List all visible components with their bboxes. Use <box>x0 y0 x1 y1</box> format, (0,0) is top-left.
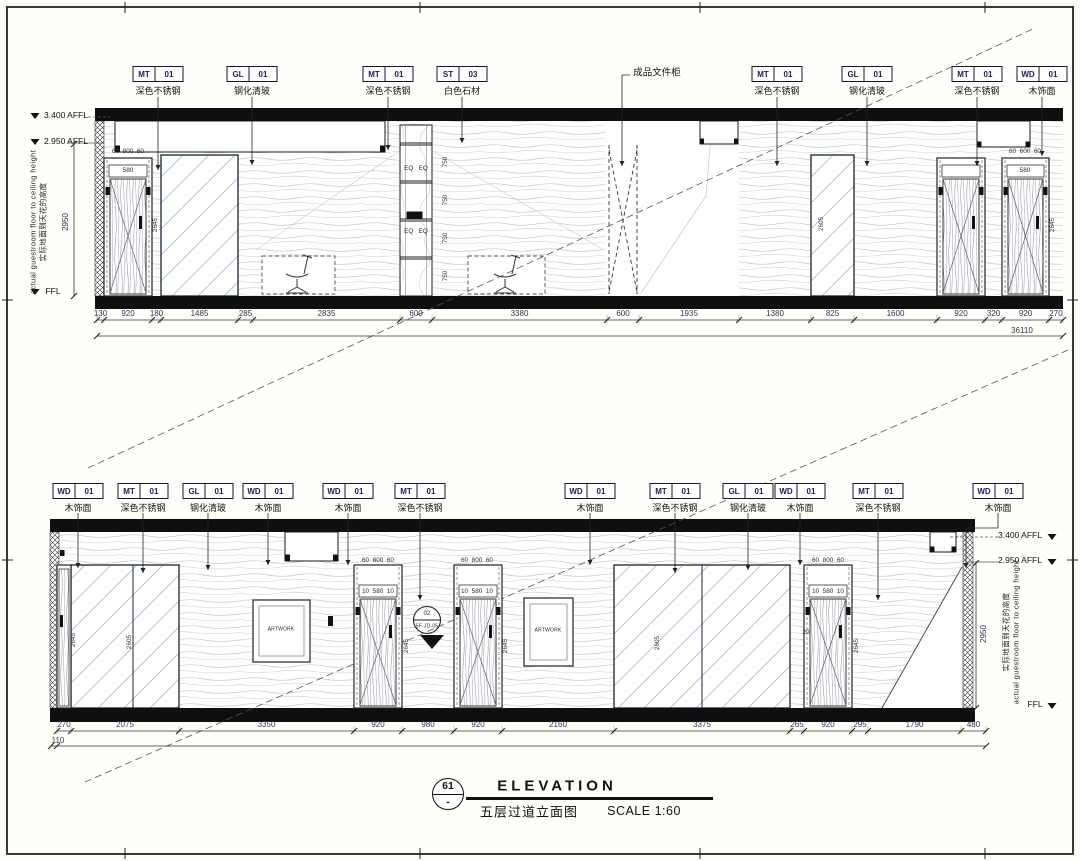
drawing-sheet: 1309201801485285283560033806001935138082… <box>0 0 1080 861</box>
material-number: 01 <box>672 484 700 498</box>
material-tag: WD01木饰面 <box>53 483 104 514</box>
detail-number-bubble: 61 - <box>432 778 464 810</box>
material-code: MT <box>396 484 417 498</box>
height-dimension: 2950 <box>62 213 70 231</box>
material-desc: 深色不锈钢 <box>365 84 410 97</box>
material-number: 01 <box>75 484 103 498</box>
reveal-dimension: 20 <box>802 630 809 636</box>
material-tag-box: MT01 <box>118 483 169 499</box>
dim-label: 920 <box>371 721 384 729</box>
level-label: FFL <box>45 287 60 296</box>
material-desc: 深色不锈钢 <box>754 84 799 97</box>
dim-label: 2835 <box>318 310 336 318</box>
dim-label: 10 580 10 <box>461 589 493 595</box>
dim-label: 1935 <box>680 310 698 318</box>
material-desc: 木饰面 <box>786 501 813 514</box>
dim-label: 2645 <box>153 218 159 232</box>
level-label: FFL <box>1027 700 1042 709</box>
dim-label: 920 <box>1019 310 1032 318</box>
dim-label: 10 580 10 <box>812 589 844 595</box>
material-code: WD <box>974 484 995 498</box>
material-code: ST <box>438 67 459 81</box>
material-desc: 深色不锈钢 <box>397 501 442 514</box>
material-number: 01 <box>249 67 277 81</box>
level-label: 2.950 AFFL <box>44 137 88 146</box>
material-tag-box: WD01 <box>775 483 826 499</box>
material-code: WD <box>566 484 587 498</box>
material-tag-box: MT01 <box>853 483 904 499</box>
dim-label: 320 <box>987 310 1000 318</box>
detail-bubble-ref: 5F-JD-05 <box>416 624 438 629</box>
material-number: 01 <box>265 484 293 498</box>
material-tag-box: GL01 <box>842 66 893 82</box>
material-number: 01 <box>1039 67 1067 81</box>
material-tag-box: MT01 <box>363 66 414 82</box>
dim-label: 2075 <box>116 721 134 729</box>
drawing-title-cn: 五层过道立面图 <box>480 802 578 821</box>
material-tag: WD01木饰面 <box>775 483 826 514</box>
dim-label: EQ EQ <box>404 229 428 235</box>
material-number: 01 <box>797 484 825 498</box>
material-desc: 深色不锈钢 <box>120 501 165 514</box>
material-tag: MT01深色不锈钢 <box>118 483 169 514</box>
material-code: MT <box>753 67 774 81</box>
material-desc: 深色不锈钢 <box>954 84 999 97</box>
material-tag: MT01深色不锈钢 <box>752 66 803 97</box>
material-number: 01 <box>155 67 183 81</box>
drawing-title: ELEVATION <box>497 778 617 795</box>
material-tag-box: MT01 <box>650 483 701 499</box>
material-number: 01 <box>140 484 168 498</box>
dim-label: 2605 <box>819 217 825 231</box>
material-tag: MT01深色不锈钢 <box>952 66 1003 97</box>
dim-label: 10 580 10 <box>362 589 394 595</box>
dim-label: 130 <box>94 310 107 318</box>
material-desc: 木饰面 <box>984 501 1011 514</box>
material-tag: MT01深色不锈钢 <box>133 66 184 97</box>
material-number: 01 <box>385 67 413 81</box>
dim-label: 920 <box>821 721 834 729</box>
material-number: 03 <box>459 67 487 81</box>
dim-label: 270 <box>1049 310 1062 318</box>
material-tag-box: MT01 <box>752 66 803 82</box>
material-tag-box: ST03 <box>437 66 488 82</box>
material-tag-box: GL01 <box>227 66 278 82</box>
material-code: MT <box>364 67 385 81</box>
artwork-label: ARTWORK <box>535 629 562 634</box>
material-desc: 白色石材 <box>444 84 480 97</box>
dim-label: 750 <box>443 195 449 206</box>
dim-label: 600 <box>616 310 629 318</box>
height-dimension: 2950 <box>980 625 988 643</box>
dim-label: 2605 <box>655 636 661 650</box>
dim-label: 2645 <box>71 633 77 647</box>
dim-label: 180 <box>150 310 163 318</box>
material-number: 01 <box>974 67 1002 81</box>
dim-label: 825 <box>826 310 839 318</box>
material-tag: MT01深色不锈钢 <box>395 483 446 514</box>
material-tag: WD01木饰面 <box>565 483 616 514</box>
dim-label: 265 <box>790 721 803 729</box>
dim-label: 3350 <box>258 721 276 729</box>
material-tag: WD01木饰面 <box>243 483 294 514</box>
dim-label: 3380 <box>511 310 529 318</box>
side-note-en: actual guestroom floor to ceiling height <box>29 150 37 294</box>
material-code: GL <box>228 67 249 81</box>
material-desc: 深色不锈钢 <box>855 501 900 514</box>
material-code: GL <box>184 484 205 498</box>
material-tag: GL01钢化清玻 <box>723 483 774 514</box>
material-tag: WD01木饰面 <box>1017 66 1068 97</box>
material-tag-box: MT01 <box>395 483 446 499</box>
dim-label: 580 <box>1020 168 1031 174</box>
material-code: MT <box>651 484 672 498</box>
material-code: MT <box>854 484 875 498</box>
dim-label: 60 600 60 <box>1009 149 1041 155</box>
material-tag: MT01深色不锈钢 <box>853 483 904 514</box>
offset-dimension: 110 <box>52 737 65 745</box>
dim-label: 2160 <box>549 721 567 729</box>
dim-label: 980 <box>421 721 434 729</box>
dim-label: 1600 <box>887 310 905 318</box>
dim-label: 1380 <box>766 310 784 318</box>
dim-label: 2645 <box>404 639 410 653</box>
material-code: GL <box>724 484 745 498</box>
dim-label: 2645 <box>1050 218 1056 232</box>
material-tag-box: WD01 <box>1017 66 1068 82</box>
material-code: MT <box>119 484 140 498</box>
material-tag-box: GL01 <box>183 483 234 499</box>
material-tag-box: WD01 <box>973 483 1024 499</box>
dim-label: 750 <box>443 157 449 168</box>
dim-label: 3375 <box>693 721 711 729</box>
dim-label: 2645 <box>854 639 860 653</box>
dim-label: 60 800 60 <box>812 558 844 564</box>
material-tag-box: WD01 <box>53 483 104 499</box>
material-code: GL <box>843 67 864 81</box>
dim-label: 1485 <box>191 310 209 318</box>
material-code: WD <box>324 484 345 498</box>
side-note-cn: 实际地面到天花的高度 <box>1002 593 1010 672</box>
material-desc: 深色不锈钢 <box>652 501 697 514</box>
material-tag: GL01钢化清玻 <box>183 483 234 514</box>
material-number: 01 <box>864 67 892 81</box>
material-tag-box: MT01 <box>133 66 184 82</box>
material-tag-box: WD01 <box>243 483 294 499</box>
dim-label: 1790 <box>906 721 924 729</box>
material-number: 01 <box>875 484 903 498</box>
material-number: 01 <box>205 484 233 498</box>
material-number: 01 <box>774 67 802 81</box>
material-tag: GL01钢化清玻 <box>227 66 278 97</box>
material-desc: 木饰面 <box>64 501 91 514</box>
annotation-layer: 1309201801485285283560033806001935138082… <box>0 0 1080 861</box>
material-number: 01 <box>745 484 773 498</box>
material-tag-box: WD01 <box>323 483 374 499</box>
material-number: 01 <box>995 484 1023 498</box>
cabinet-note: 成品文件柜 <box>633 68 681 78</box>
side-note-cn: 实际地面到天花的高度 <box>39 183 47 262</box>
material-desc: 木饰面 <box>254 501 281 514</box>
material-tag: MT01深色不锈钢 <box>650 483 701 514</box>
dim-label: 270 <box>57 721 70 729</box>
artwork-label: ARTWORK <box>268 628 295 633</box>
material-desc: 木饰面 <box>576 501 603 514</box>
material-desc: 钢化清玻 <box>190 501 226 514</box>
dim-label: 920 <box>121 310 134 318</box>
material-desc: 深色不锈钢 <box>135 84 180 97</box>
dim-label: 750 <box>443 271 449 282</box>
material-code: WD <box>54 484 75 498</box>
material-desc: 木饰面 <box>334 501 361 514</box>
dim-label: 750 <box>443 233 449 244</box>
material-number: 01 <box>417 484 445 498</box>
drawing-scale: SCALE 1:60 <box>607 804 681 818</box>
dim-label: 920 <box>471 721 484 729</box>
overall-dimension: 36110 <box>1011 327 1033 335</box>
material-number: 01 <box>345 484 373 498</box>
dim-label: 920 <box>954 310 967 318</box>
material-code: WD <box>776 484 797 498</box>
material-tag-box: WD01 <box>565 483 616 499</box>
material-desc: 钢化清玻 <box>730 501 766 514</box>
material-tag: WD01木饰面 <box>973 483 1024 514</box>
detail-bubble-number: 02 <box>423 611 430 617</box>
material-tag: MT01深色不锈钢 <box>363 66 414 97</box>
material-tag-box: MT01 <box>952 66 1003 82</box>
material-tag: WD01木饰面 <box>323 483 374 514</box>
dim-label: 295 <box>853 721 866 729</box>
material-tag: ST03白色石材 <box>437 66 488 97</box>
dim-label: 580 <box>123 168 134 174</box>
material-number: 01 <box>587 484 615 498</box>
dim-label: 2645 <box>503 639 509 653</box>
material-code: MT <box>953 67 974 81</box>
material-code: MT <box>134 67 155 81</box>
material-code: WD <box>244 484 265 498</box>
level-label: 3.400 AFFL <box>998 531 1042 540</box>
dim-label: 60 800 60 <box>112 149 144 155</box>
side-note-en: actual guestroom floor to ceiling height <box>1012 560 1020 704</box>
title-underline <box>466 797 713 800</box>
dim-label: 60 800 60 <box>461 558 493 564</box>
dim-label: 600 <box>409 310 422 318</box>
material-desc: 钢化清玻 <box>234 84 270 97</box>
level-label: 3.400 AFFL <box>44 111 88 120</box>
material-desc: 木饰面 <box>1028 84 1055 97</box>
dim-label: 2605 <box>127 635 133 649</box>
dim-label: 285 <box>239 310 252 318</box>
dim-label: 480 <box>967 721 980 729</box>
material-code: WD <box>1018 67 1039 81</box>
material-tag: GL01钢化清玻 <box>842 66 893 97</box>
detail-ref: - <box>433 795 463 810</box>
detail-number: 61 <box>433 779 463 795</box>
dim-label: EQ EQ <box>404 166 428 172</box>
material-tag-box: GL01 <box>723 483 774 499</box>
dim-label: 60 800 60 <box>362 558 394 564</box>
material-desc: 钢化清玻 <box>849 84 885 97</box>
